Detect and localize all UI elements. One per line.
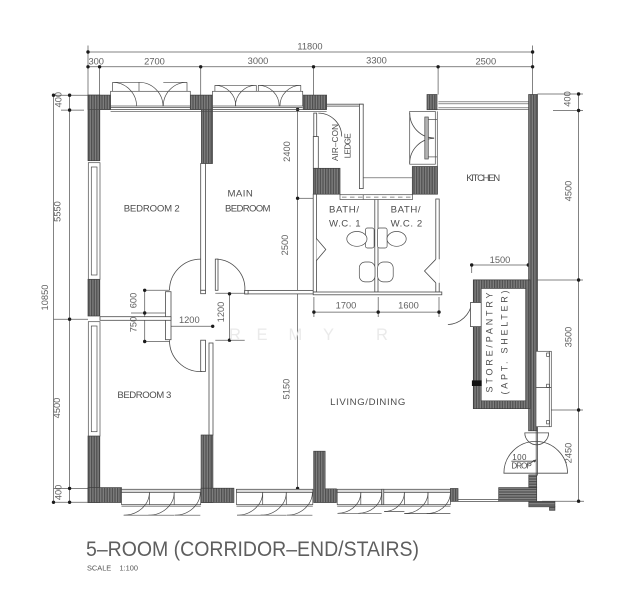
svg-text:W.C. 2: W.C. 2	[391, 219, 423, 230]
svg-text:SCALE 1:100: SCALE 1:100	[87, 563, 138, 572]
svg-text:4500: 4500	[52, 398, 62, 419]
svg-text:BATH/: BATH/	[391, 204, 421, 215]
svg-text:1200: 1200	[179, 315, 200, 325]
svg-text:2500: 2500	[475, 57, 496, 67]
svg-text:LEDGE: LEDGE	[344, 133, 353, 159]
svg-text:AIR–CON: AIR–CON	[331, 124, 340, 161]
svg-text:300: 300	[88, 56, 104, 66]
svg-text:2500: 2500	[280, 235, 290, 256]
svg-text:Y: Y	[323, 326, 334, 344]
svg-text:E: E	[257, 326, 268, 344]
svg-text:3300: 3300	[366, 56, 387, 66]
svg-text:10850: 10850	[40, 285, 50, 311]
svg-text:M: M	[289, 326, 303, 344]
svg-text:1200: 1200	[216, 302, 226, 323]
svg-text:R: R	[229, 326, 241, 344]
svg-text:5550: 5550	[53, 201, 63, 222]
svg-text:KITCHEN: KITCHEN	[466, 173, 500, 184]
svg-text:(APT. SHELTER): (APT. SHELTER)	[500, 291, 510, 395]
svg-text:1700: 1700	[336, 301, 357, 311]
svg-text:750: 750	[129, 317, 139, 333]
svg-text:11800: 11800	[297, 42, 322, 52]
svg-text:BEDROOM 2: BEDROOM 2	[124, 203, 180, 214]
svg-text:LIVING/DINING: LIVING/DINING	[330, 397, 405, 408]
svg-text:2700: 2700	[144, 56, 165, 66]
svg-text:BEDROOM: BEDROOM	[225, 203, 271, 214]
svg-text:400: 400	[54, 485, 64, 501]
svg-text:1500: 1500	[490, 255, 511, 265]
svg-text:BATH/: BATH/	[329, 204, 359, 215]
svg-text:1600: 1600	[398, 301, 419, 311]
svg-text:MAIN: MAIN	[228, 188, 253, 199]
svg-text:400: 400	[563, 91, 573, 107]
svg-text:2400: 2400	[282, 141, 292, 162]
svg-text:2450: 2450	[564, 443, 574, 464]
svg-text:3000: 3000	[248, 56, 269, 66]
svg-text:4500: 4500	[564, 181, 574, 202]
svg-text:5–ROOM (CORRIDOR–END/STAIRS): 5–ROOM (CORRIDOR–END/STAIRS)	[86, 537, 419, 561]
svg-text:BEDROOM 3: BEDROOM 3	[117, 390, 171, 401]
svg-text:W.C. 1: W.C. 1	[329, 219, 361, 230]
svg-text:400: 400	[54, 92, 64, 108]
svg-text:R: R	[376, 326, 388, 344]
svg-text:600: 600	[129, 293, 139, 309]
svg-text:DROP: DROP	[511, 462, 532, 471]
svg-text:5150: 5150	[282, 379, 292, 400]
svg-text:3500: 3500	[564, 327, 574, 348]
